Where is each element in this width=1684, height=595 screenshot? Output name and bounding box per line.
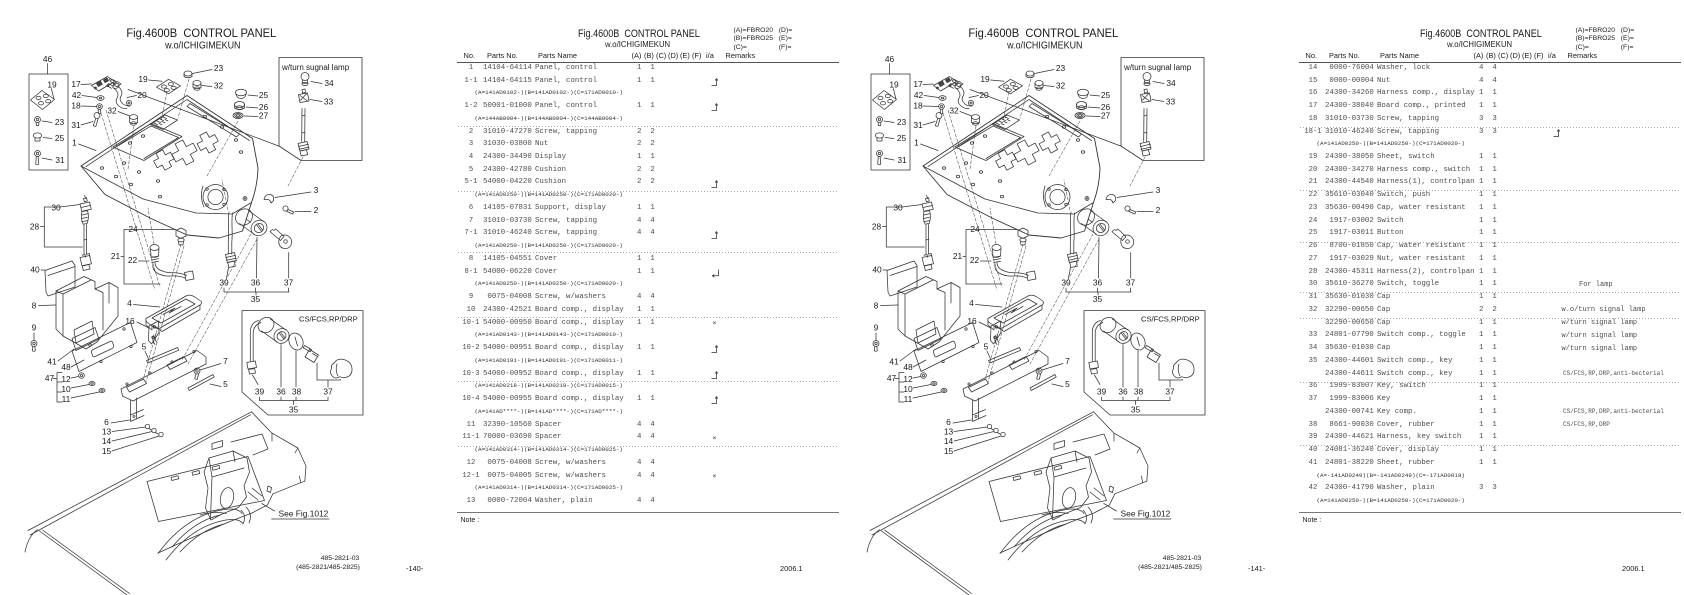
svg-text:Fig.4600B CONTROL PANEL: Fig.4600B CONTROL PANEL [968, 27, 1118, 41]
svg-text:8: 8 [32, 301, 37, 311]
svg-text:37: 37 [1165, 387, 1175, 397]
svg-text:See Fig.1012: See Fig.1012 [1121, 509, 1171, 519]
svg-text:15: 15 [944, 446, 954, 456]
svg-text:40: 40 [30, 265, 40, 275]
svg-text:14: 14 [102, 436, 112, 446]
svg-text:13: 13 [102, 427, 112, 437]
svg-text:36: 36 [1093, 278, 1103, 288]
svg-text:18: 18 [913, 101, 923, 111]
svg-text:48: 48 [903, 362, 913, 372]
svg-text:25: 25 [1101, 90, 1111, 100]
svg-text:10: 10 [903, 384, 913, 394]
svg-text:19: 19 [889, 80, 899, 90]
svg-text:25: 25 [259, 90, 269, 100]
svg-text:1: 1 [914, 138, 919, 148]
svg-text:17: 17 [913, 79, 923, 89]
svg-text:31: 31 [897, 155, 907, 165]
svg-text:42: 42 [914, 90, 924, 100]
svg-text:9: 9 [32, 323, 37, 333]
svg-text:w/turn sugnal lamp: w/turn sugnal lamp [1123, 63, 1192, 72]
svg-text:35: 35 [251, 294, 261, 304]
svg-text:3: 3 [314, 185, 319, 195]
svg-text:22: 22 [970, 255, 980, 265]
svg-text:18: 18 [71, 101, 81, 111]
svg-text:28: 28 [30, 222, 40, 232]
svg-text:w.o/ICHIGIMEKUN: w.o/ICHIGIMEKUN [1006, 40, 1082, 50]
svg-text:7: 7 [223, 356, 228, 366]
svg-text:31: 31 [55, 155, 65, 165]
svg-text:41: 41 [47, 357, 57, 367]
svg-text:14: 14 [944, 436, 954, 446]
svg-text:9: 9 [874, 323, 879, 333]
svg-text:38: 38 [292, 387, 302, 397]
svg-text:27: 27 [1101, 111, 1111, 121]
svg-text:25: 25 [55, 133, 65, 143]
svg-text:25: 25 [897, 133, 907, 143]
svg-text:19: 19 [980, 74, 990, 84]
svg-text:37: 37 [284, 278, 294, 288]
svg-text:33: 33 [324, 97, 334, 107]
svg-text:7: 7 [1065, 356, 1070, 366]
svg-text:37: 37 [323, 387, 333, 397]
svg-text:32: 32 [214, 81, 224, 91]
svg-text:34: 34 [1166, 78, 1176, 88]
svg-text:19: 19 [47, 80, 57, 90]
svg-text:40: 40 [872, 265, 882, 275]
svg-text:12: 12 [903, 374, 913, 384]
svg-text:2: 2 [314, 205, 319, 215]
svg-text:6: 6 [104, 417, 109, 427]
svg-text:39: 39 [1097, 387, 1107, 397]
svg-text:36: 36 [1118, 387, 1128, 397]
svg-text:37: 37 [1126, 278, 1136, 288]
svg-text:36: 36 [276, 387, 286, 397]
svg-text:47: 47 [45, 373, 55, 383]
svg-text:8: 8 [874, 301, 879, 311]
svg-text:2: 2 [1156, 205, 1161, 215]
svg-text:32: 32 [949, 106, 959, 116]
svg-text:41: 41 [889, 357, 899, 367]
svg-text:See Fig.1012: See Fig.1012 [279, 509, 329, 519]
svg-text:32: 32 [1056, 81, 1066, 91]
svg-text:35: 35 [289, 405, 299, 415]
svg-text:4: 4 [127, 298, 132, 308]
svg-text:5: 5 [142, 342, 147, 352]
svg-text:CS/FCS,RP/DRP: CS/FCS,RP/DRP [299, 315, 358, 324]
svg-text:35: 35 [1131, 405, 1141, 415]
svg-text:35: 35 [1093, 294, 1103, 304]
svg-text:39: 39 [255, 387, 265, 397]
svg-text:5: 5 [984, 342, 989, 352]
svg-text:34: 34 [324, 78, 334, 88]
svg-text:23: 23 [1056, 63, 1066, 73]
svg-text:30: 30 [893, 203, 903, 213]
svg-text:27: 27 [259, 111, 269, 121]
svg-text:28: 28 [872, 222, 882, 232]
svg-text:22: 22 [128, 255, 138, 265]
svg-text:23: 23 [897, 117, 907, 127]
svg-text:42: 42 [72, 90, 82, 100]
svg-text:5: 5 [1065, 379, 1070, 389]
svg-text:33: 33 [1166, 97, 1176, 107]
svg-text:6: 6 [946, 417, 951, 427]
svg-text:19: 19 [138, 74, 148, 84]
svg-text:46: 46 [43, 54, 53, 64]
svg-text:10: 10 [61, 384, 71, 394]
svg-text:38: 38 [1134, 387, 1144, 397]
svg-text:32: 32 [107, 106, 117, 116]
svg-text:13: 13 [944, 427, 954, 437]
svg-text:11: 11 [62, 394, 71, 404]
svg-text:31: 31 [913, 120, 923, 130]
svg-text:36: 36 [251, 278, 261, 288]
svg-text:47: 47 [887, 373, 897, 383]
svg-text:12: 12 [61, 374, 71, 384]
svg-text:15: 15 [102, 446, 112, 456]
svg-text:3: 3 [1156, 185, 1161, 195]
svg-text:w/turn sugnal lamp: w/turn sugnal lamp [281, 63, 350, 72]
svg-text:48: 48 [61, 362, 71, 372]
svg-text:11: 11 [904, 394, 913, 404]
svg-text:46: 46 [885, 54, 895, 64]
svg-text:CS/FCS,RP/DRP: CS/FCS,RP/DRP [1141, 315, 1200, 324]
svg-text:23: 23 [55, 117, 65, 127]
svg-text:21: 21 [953, 251, 963, 261]
svg-text:Fig.4600B CONTROL PANEL: Fig.4600B CONTROL PANEL [126, 27, 276, 41]
svg-text:21: 21 [111, 251, 121, 261]
svg-text:w.o/ICHIGIMEKUN: w.o/ICHIGIMEKUN [164, 40, 240, 50]
svg-text:31: 31 [71, 120, 81, 130]
svg-text:4: 4 [969, 298, 974, 308]
svg-text:23: 23 [214, 63, 224, 73]
svg-text:17: 17 [71, 79, 81, 89]
svg-text:1: 1 [72, 138, 77, 148]
svg-text:5: 5 [223, 379, 228, 389]
svg-text:30: 30 [51, 203, 61, 213]
